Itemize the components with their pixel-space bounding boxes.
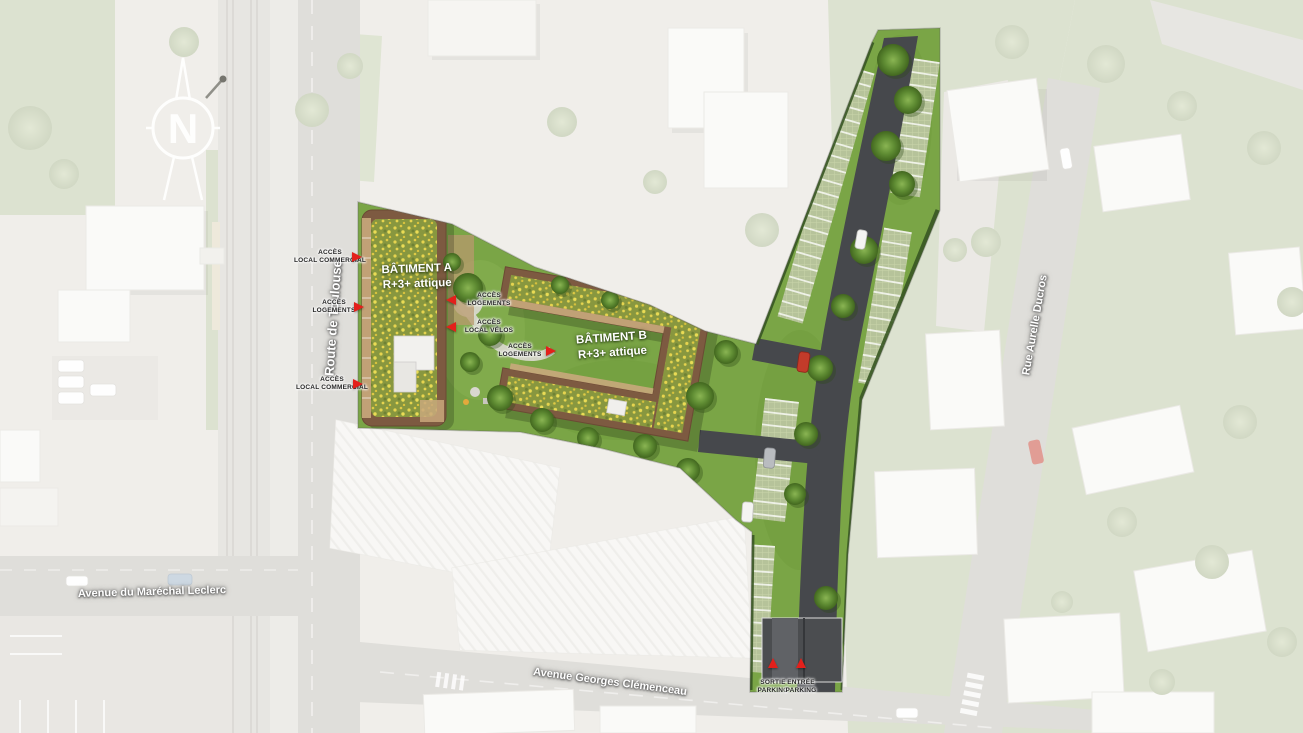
- parking-ramp: [762, 618, 842, 682]
- site-plan-image: N Route de Toulouse Avenue du Maréchal L…: [0, 0, 1303, 733]
- batiment-a: [362, 210, 454, 430]
- compass-letter: N: [168, 105, 198, 152]
- site-plan-canvas: N: [0, 0, 1303, 733]
